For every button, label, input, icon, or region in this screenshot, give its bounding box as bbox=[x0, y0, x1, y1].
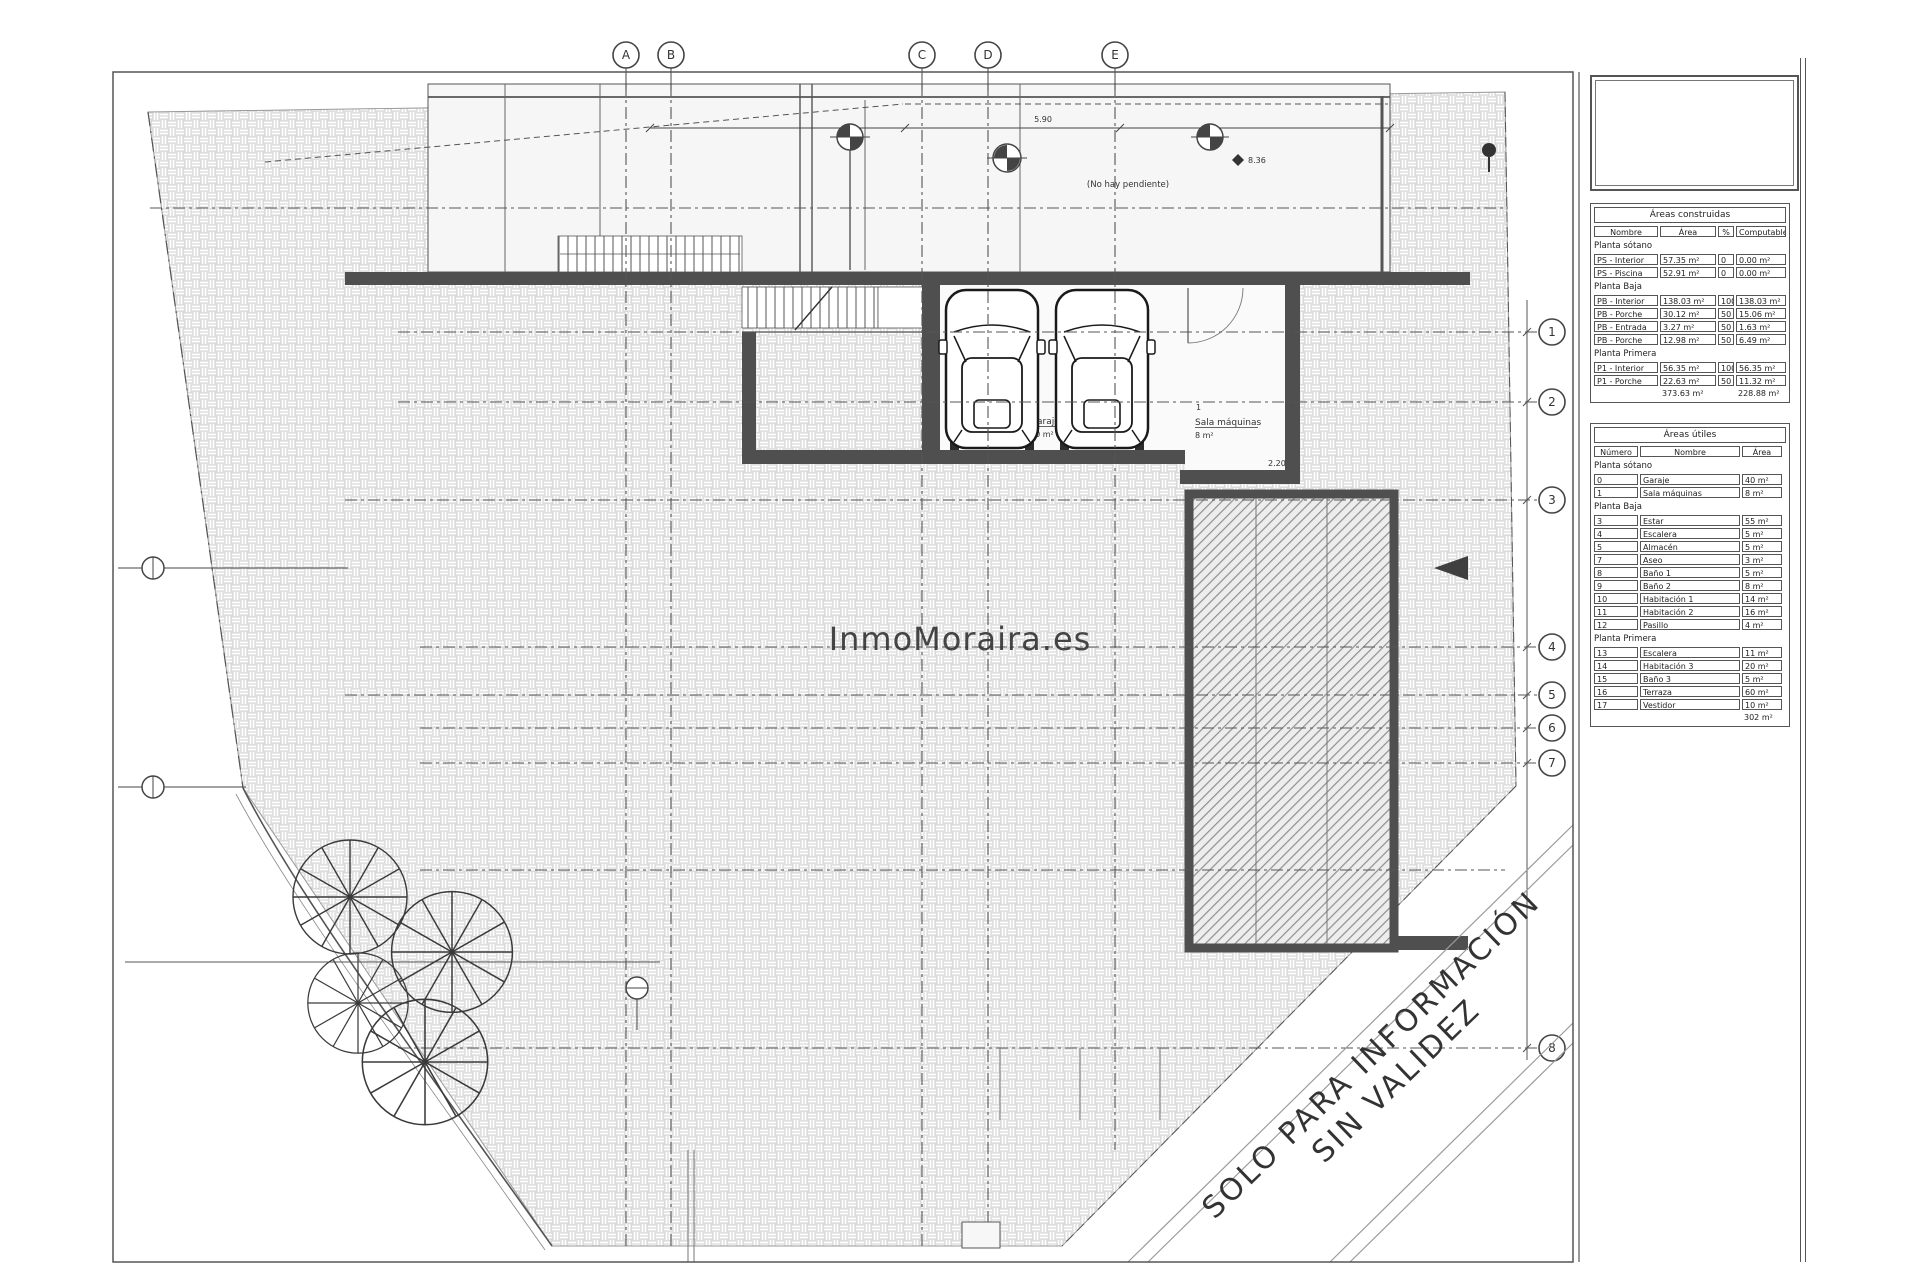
grid-bubble-e: E bbox=[1102, 42, 1128, 90]
svg-text:C: C bbox=[918, 48, 926, 62]
table-row: 10Habitación 114 m² bbox=[1594, 593, 1786, 604]
table-cell: Garaje bbox=[1640, 474, 1740, 485]
svg-text:1: 1 bbox=[1548, 325, 1556, 339]
table-cell: 1 bbox=[1594, 487, 1638, 498]
table-row: 4Escalera5 m² bbox=[1594, 528, 1786, 539]
grid-bubble-a: A bbox=[613, 42, 639, 90]
table-cell: 56.35 m² bbox=[1736, 362, 1786, 373]
table-cell: Almacén bbox=[1640, 541, 1740, 552]
table-cell: Habitación 1 bbox=[1640, 593, 1740, 604]
table-cell: 52.91 m² bbox=[1660, 267, 1716, 278]
table-cell: Vestidor bbox=[1640, 699, 1740, 710]
table-cell: 0 bbox=[1594, 474, 1638, 485]
table-cell: 17 bbox=[1594, 699, 1638, 710]
table-cell: 50 bbox=[1718, 375, 1734, 386]
dim-label-a: 5.90 bbox=[1034, 115, 1052, 124]
svg-text:3: 3 bbox=[1548, 493, 1556, 507]
table-cell: Baño 2 bbox=[1640, 580, 1740, 591]
table-cell: 302 m² bbox=[1742, 712, 1782, 723]
table-cell: Escalera bbox=[1640, 528, 1740, 539]
table-cell: 10 m² bbox=[1742, 699, 1782, 710]
table-cell: 100 bbox=[1718, 295, 1734, 306]
grid-bubble-7: 7 bbox=[1539, 750, 1565, 776]
table-row: 3Estar55 m² bbox=[1594, 515, 1786, 526]
table-cell: PB - Porche bbox=[1594, 308, 1658, 319]
car-1 bbox=[939, 290, 1045, 450]
sheet-edge-border bbox=[1800, 58, 1806, 1262]
table-cell: Aseo bbox=[1640, 554, 1740, 565]
table-cell: PS - Piscina bbox=[1594, 267, 1658, 278]
table-cell: 11.32 m² bbox=[1736, 375, 1786, 386]
table-row: 15Baño 35 m² bbox=[1594, 673, 1786, 684]
table-cell: 15.06 m² bbox=[1736, 308, 1786, 319]
table-cell: 3.27 m² bbox=[1660, 321, 1716, 332]
table-cell: 8 m² bbox=[1742, 487, 1782, 498]
table-row: P1 - Interior56.35 m²10056.35 m² bbox=[1594, 362, 1786, 373]
table-row: 16Terraza60 m² bbox=[1594, 686, 1786, 697]
table-header-row: NúmeroNombreÁrea bbox=[1594, 446, 1786, 457]
grid-bubble-8: 8 bbox=[1539, 1035, 1565, 1061]
table-cell: 3 m² bbox=[1742, 554, 1782, 565]
table-cell: 228.88 m² bbox=[1736, 388, 1786, 399]
table-cell: 14 bbox=[1594, 660, 1638, 671]
table-cell: Baño 1 bbox=[1640, 567, 1740, 578]
table-cell: Área bbox=[1660, 226, 1716, 237]
table-cell: 138.03 m² bbox=[1736, 295, 1786, 306]
svg-text:6: 6 bbox=[1548, 721, 1556, 735]
table-cell: 55 m² bbox=[1742, 515, 1782, 526]
table-cell: 16 m² bbox=[1742, 606, 1782, 617]
table-title: Áreas útiles bbox=[1594, 427, 1786, 443]
grid-bubble-4: 4 bbox=[1539, 634, 1565, 660]
title-block bbox=[1590, 75, 1799, 191]
table-row: P1 - Porche22.63 m²5011.32 m² bbox=[1594, 375, 1786, 386]
table-cell: PB - Interior bbox=[1594, 295, 1658, 306]
table-row: 7Aseo3 m² bbox=[1594, 554, 1786, 565]
areas-construidas-table: Áreas construidasNombreÁrea%ComputablePl… bbox=[1590, 203, 1790, 403]
grid-bubble-1: 1 bbox=[1539, 319, 1565, 345]
upper-building: 5.90 (No hay pendiente) 8.36 bbox=[265, 84, 1496, 272]
svg-text:E: E bbox=[1111, 48, 1119, 62]
table-cell: % bbox=[1718, 226, 1734, 237]
table-section-label: Planta Primera bbox=[1594, 634, 1786, 645]
table-cell: Escalera bbox=[1640, 647, 1740, 658]
svg-text:A: A bbox=[622, 48, 631, 62]
table-row: 12Pasillo4 m² bbox=[1594, 619, 1786, 630]
table-cell: 7 bbox=[1594, 554, 1638, 565]
table-cell: 138.03 m² bbox=[1660, 295, 1716, 306]
table-row: PB - Entrada3.27 m²501.63 m² bbox=[1594, 321, 1786, 332]
right-dimension-chain bbox=[1523, 300, 1531, 1060]
table-header-row: NombreÁrea%Computable bbox=[1594, 226, 1786, 237]
areas-utiles-table: Áreas útilesNúmeroNombreÁreaPlanta sótan… bbox=[1590, 423, 1790, 727]
table-cell: 57.35 m² bbox=[1660, 254, 1716, 265]
table-row: 17Vestidor10 m² bbox=[1594, 699, 1786, 710]
table-cell: 50 bbox=[1718, 308, 1734, 319]
table-cell: PB - Entrada bbox=[1594, 321, 1658, 332]
table-row: PS - Piscina52.91 m²00.00 m² bbox=[1594, 267, 1786, 278]
table-cell: 8 m² bbox=[1742, 580, 1782, 591]
table-row: 9Baño 28 m² bbox=[1594, 580, 1786, 591]
table-cell: 16 bbox=[1594, 686, 1638, 697]
table-cell: 5 bbox=[1594, 541, 1638, 552]
table-cell: 30.12 m² bbox=[1660, 308, 1716, 319]
table-cell: P1 - Interior bbox=[1594, 362, 1658, 373]
table-cell: Pasillo bbox=[1640, 619, 1740, 630]
dim-label-c: 2.20 bbox=[1268, 459, 1286, 468]
table-cell: 5 m² bbox=[1742, 567, 1782, 578]
stair-flight-lower bbox=[742, 287, 924, 332]
grid-bubble-3: 3 bbox=[1539, 487, 1565, 513]
svg-text:Sala máquinas: Sala máquinas bbox=[1195, 418, 1262, 428]
table-cell: 0.00 m² bbox=[1736, 254, 1786, 265]
table-cell: 4 m² bbox=[1742, 619, 1782, 630]
grid-bubble-b: B bbox=[658, 42, 684, 90]
table-section-label: Planta Baja bbox=[1594, 282, 1786, 293]
table-cell: PB - Porche bbox=[1594, 334, 1658, 345]
table-cell: Sala máquinas bbox=[1640, 487, 1740, 498]
table-row: 14Habitación 320 m² bbox=[1594, 660, 1786, 671]
svg-text:2: 2 bbox=[1548, 395, 1556, 409]
table-cell: Terraza bbox=[1640, 686, 1740, 697]
table-total-row: 302 m² bbox=[1594, 712, 1786, 723]
table-cell: 20 m² bbox=[1742, 660, 1782, 671]
grid-bubble-c: C bbox=[909, 42, 935, 90]
no-slope-label: (No hay pendiente) bbox=[1087, 180, 1169, 190]
table-section-label: Planta Primera bbox=[1594, 349, 1786, 360]
table-cell: 373.63 m² bbox=[1660, 388, 1716, 399]
table-cell: 60 m² bbox=[1742, 686, 1782, 697]
table-row: 8Baño 15 m² bbox=[1594, 567, 1786, 578]
drawing-sheet: 5.90 (No hay pendiente) 8.36 bbox=[0, 0, 1920, 1280]
table-cell: 0.00 m² bbox=[1736, 267, 1786, 278]
table-section-label: Planta sótano bbox=[1594, 241, 1786, 252]
svg-text:4: 4 bbox=[1548, 640, 1556, 654]
table-cell: 14 m² bbox=[1742, 593, 1782, 604]
table-cell: 11 m² bbox=[1742, 647, 1782, 658]
table-cell: 10 bbox=[1594, 593, 1638, 604]
table-section-label: Planta Baja bbox=[1594, 502, 1786, 513]
table-row: PB - Interior138.03 m²100138.03 m² bbox=[1594, 295, 1786, 306]
grid-bubble-2: 2 bbox=[1539, 389, 1565, 415]
table-cell: 5 m² bbox=[1742, 673, 1782, 684]
grid-bubble-6: 6 bbox=[1539, 715, 1565, 741]
svg-text:8.36: 8.36 bbox=[1248, 156, 1266, 165]
table-title: Áreas construidas bbox=[1594, 207, 1786, 223]
table-cell: Habitación 3 bbox=[1640, 660, 1740, 671]
table-row: PB - Porche30.12 m²5015.06 m² bbox=[1594, 308, 1786, 319]
table-cell: 22.63 m² bbox=[1660, 375, 1716, 386]
table-cell: 15 bbox=[1594, 673, 1638, 684]
table-cell: 100 bbox=[1718, 362, 1734, 373]
table-cell: 5 m² bbox=[1742, 541, 1782, 552]
grid-bubbles-right: 1 2 3 4 5 6 7 8 bbox=[1539, 319, 1565, 1061]
main-wall bbox=[345, 272, 1470, 285]
table-cell: Área bbox=[1742, 446, 1782, 457]
table-cell: 40 m² bbox=[1742, 474, 1782, 485]
machine-room: 1 Sala máquinas 8 m² 2.20 bbox=[1180, 285, 1300, 484]
table-total-row: 373.63 m²228.88 m² bbox=[1594, 388, 1786, 399]
svg-text:8 m²: 8 m² bbox=[1195, 431, 1214, 440]
table-cell: 0 bbox=[1718, 267, 1734, 278]
survey-marker-left-2 bbox=[118, 776, 246, 798]
table-cell: Habitación 2 bbox=[1640, 606, 1740, 617]
stair-flight-upper bbox=[558, 236, 742, 272]
table-row: 0Garaje40 m² bbox=[1594, 474, 1786, 485]
table-cell: 5 m² bbox=[1742, 528, 1782, 539]
car-2 bbox=[1049, 290, 1155, 450]
table-row: PB - Porche12.98 m²506.49 m² bbox=[1594, 334, 1786, 345]
table-row: 1Sala máquinas8 m² bbox=[1594, 487, 1786, 498]
table-section-label: Planta sótano bbox=[1594, 461, 1786, 472]
table-cell: 50 bbox=[1718, 334, 1734, 345]
svg-text:7: 7 bbox=[1548, 756, 1556, 770]
svg-text:B: B bbox=[667, 48, 675, 62]
table-cell: P1 - Porche bbox=[1594, 375, 1658, 386]
table-cell: 9 bbox=[1594, 580, 1638, 591]
grid-bubble-d: D bbox=[975, 42, 1001, 90]
table-cell: 1.63 m² bbox=[1736, 321, 1786, 332]
table-cell: Estar bbox=[1640, 515, 1740, 526]
table-cell: 11 bbox=[1594, 606, 1638, 617]
table-cell: 12.98 m² bbox=[1660, 334, 1716, 345]
table-cell: Número bbox=[1594, 446, 1638, 457]
table-row: PS - Interior57.35 m²00.00 m² bbox=[1594, 254, 1786, 265]
grid-bubble-5: 5 bbox=[1539, 682, 1565, 708]
table-cell: 50 bbox=[1718, 321, 1734, 332]
table-cell: 6.49 m² bbox=[1736, 334, 1786, 345]
watermark-text: InmoMoraira.es bbox=[829, 620, 1092, 658]
table-cell: 4 bbox=[1594, 528, 1638, 539]
table-cell: 12 bbox=[1594, 619, 1638, 630]
table-row: 11Habitación 216 m² bbox=[1594, 606, 1786, 617]
table-cell: PS - Interior bbox=[1594, 254, 1658, 265]
table-cell: 3 bbox=[1594, 515, 1638, 526]
table-cell: 0 bbox=[1718, 254, 1734, 265]
table-cell: Nombre bbox=[1640, 446, 1740, 457]
table-cell: Baño 3 bbox=[1640, 673, 1740, 684]
svg-text:5: 5 bbox=[1548, 688, 1556, 702]
table-cell: 13 bbox=[1594, 647, 1638, 658]
table-cell: 8 bbox=[1594, 567, 1638, 578]
table-cell: Computable bbox=[1736, 226, 1786, 237]
grid-bubbles-top: A B C D E bbox=[613, 42, 1128, 90]
svg-text:1: 1 bbox=[1196, 403, 1201, 412]
table-cell: Nombre bbox=[1594, 226, 1658, 237]
svg-text:D: D bbox=[983, 48, 992, 62]
spot-level-marker: 8.36 bbox=[1232, 154, 1266, 166]
table-cell: 56.35 m² bbox=[1660, 362, 1716, 373]
table-row: 13Escalera11 m² bbox=[1594, 647, 1786, 658]
table-row: 5Almacén5 m² bbox=[1594, 541, 1786, 552]
